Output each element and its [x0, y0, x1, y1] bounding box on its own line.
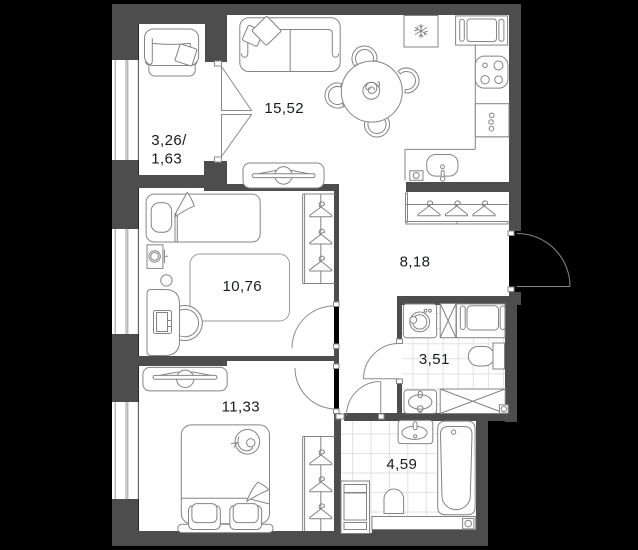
- svg-text:15,52: 15,52: [264, 100, 304, 117]
- svg-text:3,26/: 3,26/: [151, 132, 187, 149]
- svg-text:10,76: 10,76: [223, 278, 263, 295]
- svg-text:3,51: 3,51: [419, 351, 450, 368]
- svg-text:11,33: 11,33: [222, 399, 260, 416]
- svg-text:4,59: 4,59: [386, 456, 417, 473]
- svg-text:1,63: 1,63: [151, 151, 182, 168]
- svg-text:8,18: 8,18: [400, 254, 431, 271]
